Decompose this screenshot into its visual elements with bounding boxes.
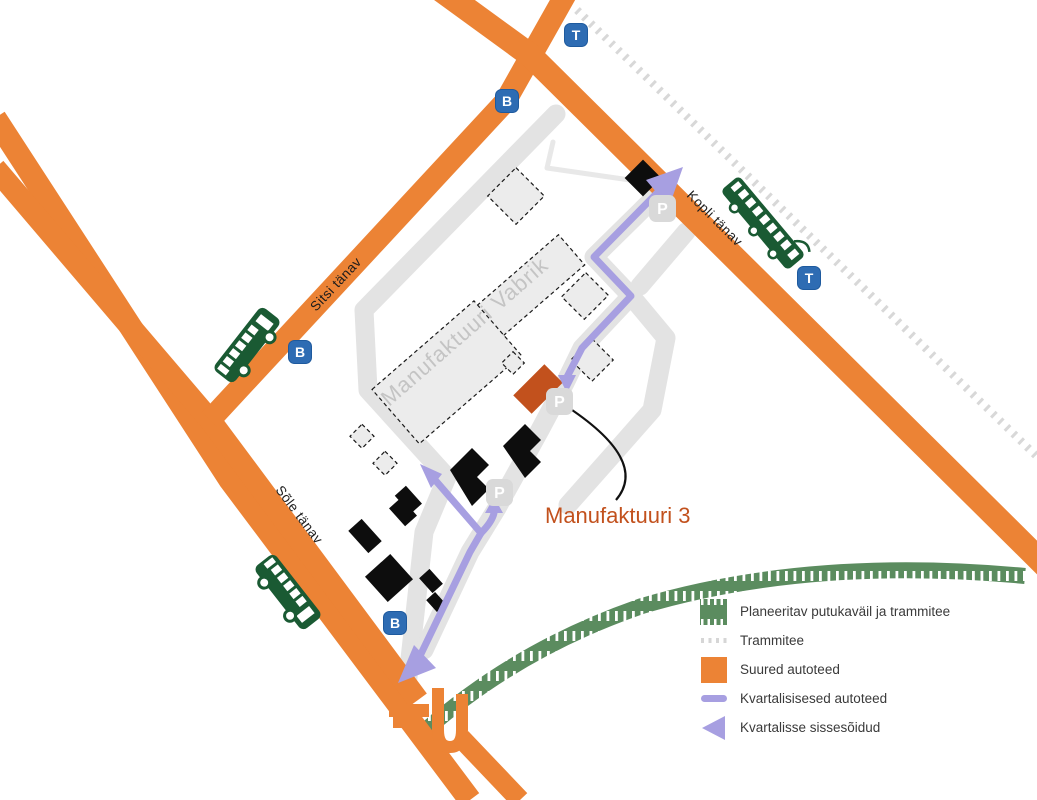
svg-text:T: T [805, 270, 814, 286]
legend-label: Planeeritav putukaväil ja trammitee [740, 604, 950, 619]
quarter-road-swatch-icon [700, 695, 727, 702]
parking-badge: P [486, 479, 513, 506]
site-access-map: Sitsi tänav Sõle tänav Kopli tänav Manuf… [0, 0, 1037, 800]
svg-text:P: P [657, 201, 668, 218]
label-sitsi: Sitsi tänav [307, 254, 364, 314]
svg-text:P: P [554, 394, 565, 411]
major-road-swatch-icon [700, 657, 727, 683]
svg-text:T: T [572, 27, 581, 43]
svg-text:P: P [494, 485, 505, 502]
tram-stop-badge: T [798, 267, 821, 290]
parking-badge: P [546, 388, 573, 415]
legend-label: Kvartalisse sissesõidud [740, 720, 880, 735]
legend-label: Suured autoteed [740, 662, 840, 677]
legend-label: Kvartalisisesed autoteed [740, 691, 887, 706]
legend-item-quarter-roads: Kvartalisisesed autoteed [700, 684, 1030, 713]
svg-text:B: B [295, 344, 305, 360]
green-corridor-swatch-icon [700, 599, 727, 625]
legend: Planeeritav putukaväil ja trammitee Tram… [700, 597, 1030, 742]
legend-item-green-corridor: Planeeritav putukaväil ja trammitee [700, 597, 1030, 626]
tram-stop-badge: T [565, 24, 588, 47]
legend-label: Trammitee [740, 633, 804, 648]
bus-stop-badge: B [496, 90, 519, 113]
bus-stop-badge: B [289, 341, 312, 364]
svg-text:B: B [502, 93, 512, 109]
svg-text:B: B [390, 615, 400, 631]
entrance-arrow-swatch-icon [700, 716, 727, 740]
legend-item-major-roads: Suured autoteed [700, 655, 1030, 684]
parking-badge: P [649, 195, 676, 222]
tramline-dashed [577, 10, 1037, 508]
legend-item-tramline: Trammitee [700, 626, 1030, 655]
tramline-swatch-icon [700, 638, 727, 643]
label-manufaktuuri-3: Manufaktuuri 3 [545, 503, 691, 528]
legend-item-quarter-entrances: Kvartalisse sissesõidud [700, 713, 1030, 742]
bus-stop-badge: B [384, 612, 407, 635]
